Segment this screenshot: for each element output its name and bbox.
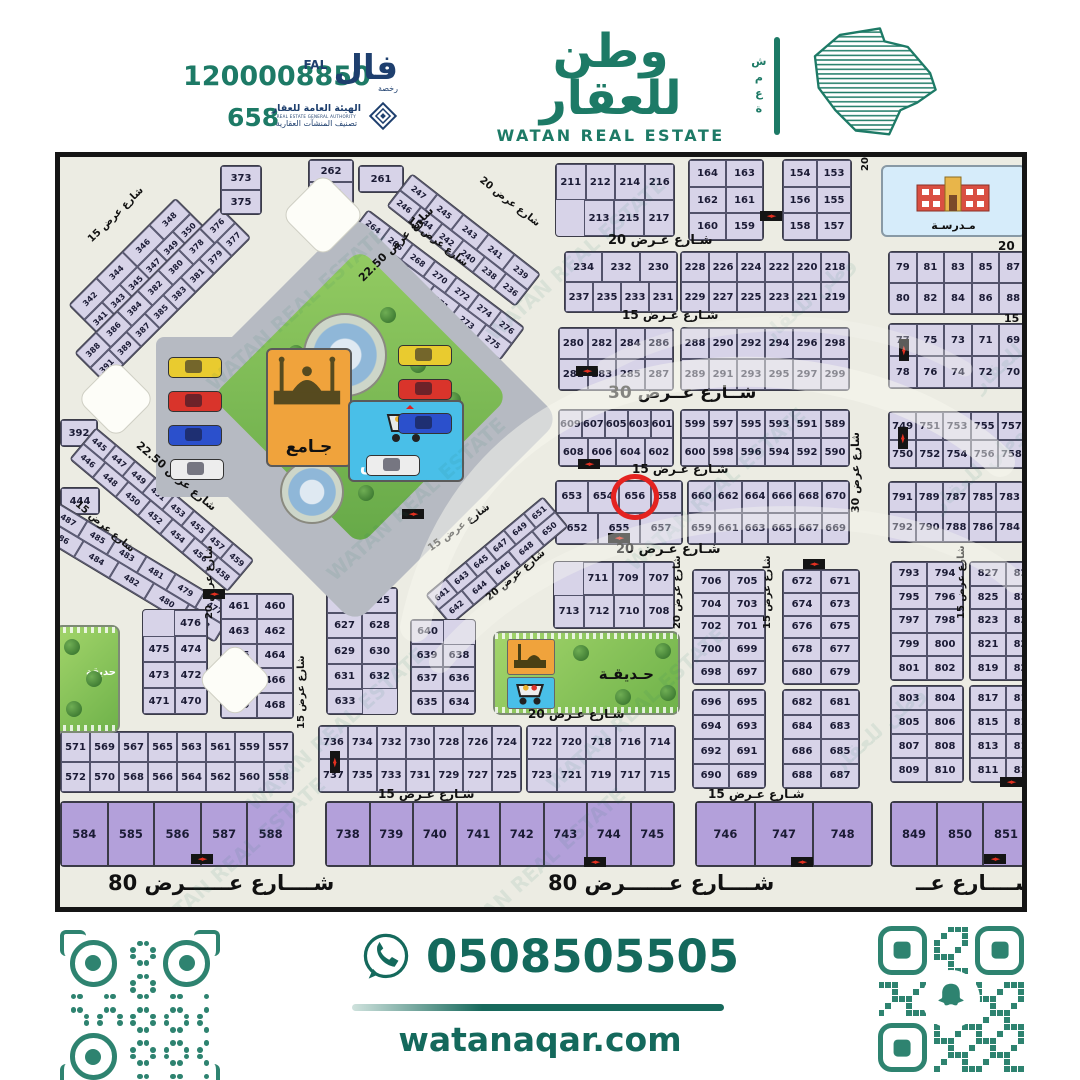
plot-83: 83 bbox=[944, 252, 972, 283]
plot-632: 632 bbox=[362, 664, 397, 689]
plot-816: 816 bbox=[1006, 710, 1027, 734]
plot-84: 84 bbox=[944, 283, 972, 314]
plot-810: 810 bbox=[927, 758, 963, 782]
plot-565: 565 bbox=[148, 732, 177, 762]
traffic-arrow-icon: ◄► bbox=[760, 211, 782, 221]
plot-793: 793 bbox=[891, 562, 927, 586]
plot-670: 670 bbox=[822, 481, 849, 513]
block-634: 640639638637636635634 bbox=[410, 619, 476, 715]
plot-752: 752 bbox=[916, 440, 943, 468]
qr-finder bbox=[878, 1023, 927, 1072]
plot-559: 559 bbox=[235, 732, 264, 762]
plot-220: 220 bbox=[793, 252, 821, 282]
plot-636: 636 bbox=[443, 667, 475, 691]
street-label: شـارع عـرض 20 bbox=[608, 233, 713, 248]
plot-297: 297 bbox=[793, 359, 821, 390]
plot-474: 474 bbox=[175, 636, 207, 662]
block-557: 5715695675655635615595575725705685665645… bbox=[60, 731, 294, 793]
plot-634: 634 bbox=[443, 691, 475, 715]
car-icon bbox=[366, 455, 420, 476]
block-261: 261 bbox=[358, 165, 404, 193]
plot-685: 685 bbox=[821, 739, 859, 764]
traffic-arrow-icon: ◄► bbox=[984, 854, 1006, 864]
plot-674: 674 bbox=[783, 593, 821, 616]
plot-563: 563 bbox=[177, 732, 206, 762]
block-793: 793794795796797798799800801802 bbox=[890, 561, 964, 681]
plot-603: 603 bbox=[628, 410, 651, 438]
rega-classification: تصنيف المنشآت العقارية bbox=[272, 119, 361, 129]
plot-468: 468 bbox=[257, 693, 293, 718]
plot-585: 585 bbox=[108, 802, 155, 866]
plot-280: 280 bbox=[559, 328, 588, 359]
plot-717: 717 bbox=[616, 759, 646, 792]
plot-740: 740 bbox=[413, 802, 457, 866]
plot-empty bbox=[554, 562, 583, 595]
plot-584: 584 bbox=[61, 802, 108, 866]
plot-710: 710 bbox=[614, 595, 644, 628]
plot-721: 721 bbox=[557, 759, 587, 792]
plot-286: 286 bbox=[645, 328, 674, 359]
plot-570: 570 bbox=[90, 762, 119, 792]
plot-758: 758 bbox=[998, 440, 1025, 468]
plot-215: 215 bbox=[614, 200, 644, 236]
plot-795: 795 bbox=[891, 586, 927, 610]
street-label: 15 bbox=[1004, 312, 1019, 325]
plot-791: 791 bbox=[889, 482, 916, 512]
street-label: شـارع عـرض 15 bbox=[708, 787, 804, 801]
plot-824: 824 bbox=[1006, 609, 1027, 633]
plot-464: 464 bbox=[257, 644, 293, 669]
plot-669: 669 bbox=[822, 513, 849, 545]
plot-653: 653 bbox=[556, 481, 588, 513]
block-373: 373375 bbox=[220, 165, 262, 215]
traffic-arrow-icon: ◄► bbox=[578, 459, 600, 469]
plot-605: 605 bbox=[605, 410, 628, 438]
plot-715: 715 bbox=[645, 759, 675, 792]
street-label: شــــارع عــ bbox=[916, 871, 1027, 895]
plot-704: 704 bbox=[693, 593, 729, 616]
plot-463: 463 bbox=[221, 619, 257, 644]
block-738: 738739740741742743744745 bbox=[325, 801, 675, 867]
tree-icon bbox=[573, 645, 589, 661]
plot-empty bbox=[444, 620, 475, 644]
plot-700: 700 bbox=[693, 638, 729, 661]
plot-757: 757 bbox=[998, 412, 1025, 440]
plot-734: 734 bbox=[348, 726, 377, 759]
block-584: 584585586587588 bbox=[60, 801, 295, 867]
plot-155: 155 bbox=[817, 187, 851, 214]
plot-88: 88 bbox=[999, 283, 1027, 314]
plot-672: 672 bbox=[783, 570, 821, 593]
plot-589: 589 bbox=[821, 410, 849, 438]
school-label: مـدرسـة bbox=[883, 219, 1024, 232]
flyer-page: 1200008850 فال FAL رخصة 658 الهيئة العام… bbox=[0, 0, 1080, 1080]
plot-159: 159 bbox=[726, 213, 763, 240]
plot-638: 638 bbox=[443, 644, 475, 668]
qr-finder bbox=[878, 926, 927, 975]
plot-705: 705 bbox=[729, 570, 765, 593]
plot-718: 718 bbox=[586, 726, 616, 759]
footer: 0508505505 watanaqar.com bbox=[0, 908, 1080, 1080]
traffic-arrow-icon: ◄► bbox=[330, 751, 340, 773]
plot-665: 665 bbox=[768, 513, 795, 545]
car-icon bbox=[398, 413, 452, 434]
plot-163: 163 bbox=[726, 160, 763, 187]
plot-680: 680 bbox=[783, 661, 821, 684]
plot-85: 85 bbox=[972, 252, 1000, 283]
plot-164: 164 bbox=[689, 160, 726, 187]
plot-677: 677 bbox=[821, 638, 859, 661]
plot-640: 640 bbox=[411, 620, 444, 644]
street-label: شارع عرض 30 bbox=[849, 432, 862, 513]
plot-557: 557 bbox=[264, 732, 293, 762]
plot-216: 216 bbox=[645, 164, 675, 200]
plot-682: 682 bbox=[783, 690, 821, 715]
plot-290: 290 bbox=[709, 328, 737, 359]
plot-228: 228 bbox=[681, 252, 709, 282]
plot-683: 683 bbox=[821, 715, 859, 740]
footer-divider bbox=[352, 1004, 724, 1011]
plot-70: 70 bbox=[999, 356, 1027, 388]
plot-849: 849 bbox=[891, 802, 937, 866]
plot-594: 594 bbox=[765, 438, 793, 466]
plot-261: 261 bbox=[359, 166, 403, 192]
car-icon bbox=[168, 357, 222, 378]
block-153: 154153156155158157 bbox=[782, 159, 852, 241]
license-area: 1200008850 فال FAL رخصة 658 الهيئة العام… bbox=[183, 55, 398, 145]
plot-825: 825 bbox=[970, 586, 1006, 610]
plot-572: 572 bbox=[61, 762, 90, 792]
plot-75: 75 bbox=[917, 324, 945, 356]
park-block: حـديقـة bbox=[493, 631, 680, 715]
plot-692: 692 bbox=[693, 739, 729, 764]
plot-821: 821 bbox=[970, 633, 1006, 657]
street-label: شــارع عــرض 30 bbox=[608, 383, 756, 403]
plot-628: 628 bbox=[362, 613, 397, 638]
plot-629: 629 bbox=[327, 638, 362, 663]
plot-460: 460 bbox=[257, 594, 293, 619]
plot-741: 741 bbox=[457, 802, 501, 866]
school-icon bbox=[913, 170, 993, 216]
plot-693: 693 bbox=[729, 715, 765, 740]
plot-162: 162 bbox=[689, 187, 726, 214]
plot-76: 76 bbox=[917, 356, 945, 388]
block-827: 827828825826823824821822819820 bbox=[969, 561, 1027, 681]
plot-809: 809 bbox=[891, 758, 927, 782]
plot-284: 284 bbox=[616, 328, 645, 359]
plot-566: 566 bbox=[148, 762, 177, 792]
block-803: 803804805806807808809810 bbox=[890, 685, 964, 783]
qr-bracket bbox=[194, 1064, 220, 1080]
plot-723: 723 bbox=[527, 759, 557, 792]
plot-218: 218 bbox=[821, 252, 849, 282]
plot-599: 599 bbox=[681, 410, 709, 438]
plot-590: 590 bbox=[821, 438, 849, 466]
car-icon bbox=[398, 379, 452, 400]
plot-797: 797 bbox=[891, 609, 927, 633]
plot-154: 154 bbox=[783, 160, 817, 187]
plot-659: 659 bbox=[688, 513, 715, 545]
plot-222: 222 bbox=[765, 252, 793, 282]
plot-725: 725 bbox=[492, 759, 521, 792]
plot-empty bbox=[143, 610, 174, 636]
plot-662: 662 bbox=[715, 481, 742, 513]
plot-294: 294 bbox=[765, 328, 793, 359]
plot-808: 808 bbox=[927, 734, 963, 758]
plot-74: 74 bbox=[944, 356, 972, 388]
plot-161: 161 bbox=[726, 187, 763, 214]
plot-475: 475 bbox=[143, 636, 175, 662]
plot-702: 702 bbox=[693, 616, 729, 639]
traffic-arrow-icon: ◄► bbox=[899, 339, 909, 361]
plot-153: 153 bbox=[817, 160, 851, 187]
plot-663: 663 bbox=[742, 513, 769, 545]
plot-282: 282 bbox=[588, 328, 617, 359]
traffic-arrow-icon: ◄► bbox=[191, 854, 213, 864]
plot-735: 735 bbox=[348, 759, 377, 792]
block-681: 682681684683686685688687 bbox=[782, 689, 860, 789]
traffic-arrow-icon: ◄► bbox=[203, 589, 225, 599]
phone-number[interactable]: 0508505505 bbox=[426, 930, 739, 983]
plot-470: 470 bbox=[175, 688, 207, 714]
plot-819: 819 bbox=[970, 656, 1006, 680]
plot-751: 751 bbox=[916, 412, 943, 440]
plot-789: 789 bbox=[916, 482, 943, 512]
plot-714: 714 bbox=[645, 726, 675, 759]
rega-name-ar: الهيئة العامة للعقار bbox=[272, 103, 361, 115]
block-230: 234232230237235233231 bbox=[564, 251, 678, 313]
qr-bracket bbox=[60, 1064, 86, 1080]
plot-221: 221 bbox=[793, 282, 821, 312]
plot-69: 69 bbox=[999, 324, 1027, 356]
mosque-block: جـامع bbox=[266, 348, 352, 467]
plot-707: 707 bbox=[644, 562, 675, 595]
qr-code-snapchat[interactable] bbox=[878, 926, 1024, 1072]
plot-156: 156 bbox=[783, 187, 817, 214]
plot-719: 719 bbox=[586, 759, 616, 792]
plot-698: 698 bbox=[693, 661, 729, 684]
plot-237: 237 bbox=[565, 282, 593, 312]
block-288: 288290292294296298289291293295297299 bbox=[680, 327, 850, 391]
block-470: 476475474473472471470 bbox=[142, 609, 208, 715]
plot-818: 818 bbox=[1006, 686, 1027, 710]
plot-730: 730 bbox=[406, 726, 435, 759]
plot-461: 461 bbox=[221, 594, 257, 619]
plot-473: 473 bbox=[143, 662, 175, 688]
traffic-arrow-icon: ◄► bbox=[608, 533, 630, 543]
plot-675: 675 bbox=[821, 616, 859, 639]
plot-806: 806 bbox=[927, 710, 963, 734]
car-icon bbox=[398, 345, 452, 366]
plot-802: 802 bbox=[927, 656, 963, 680]
plot-224: 224 bbox=[737, 252, 765, 282]
plot-591: 591 bbox=[793, 410, 821, 438]
plot-635: 635 bbox=[411, 691, 443, 715]
plot-784: 784 bbox=[996, 512, 1023, 542]
plot-592: 592 bbox=[793, 438, 821, 466]
block-589: 599597595593591589600598596594592590 bbox=[680, 409, 850, 467]
plot-234: 234 bbox=[565, 252, 602, 282]
plot-708: 708 bbox=[644, 595, 674, 628]
plot-empty bbox=[363, 689, 397, 714]
block-218: 228226224222220218229227225223221219 bbox=[680, 251, 850, 313]
tree-icon bbox=[655, 643, 671, 659]
plot-783: 783 bbox=[996, 482, 1023, 512]
plot-803: 803 bbox=[891, 686, 927, 710]
plot-595: 595 bbox=[737, 410, 765, 438]
plot-686: 686 bbox=[783, 739, 821, 764]
plot-724: 724 bbox=[492, 726, 521, 759]
brand-name-english: WATAN REAL ESTATE bbox=[478, 128, 743, 144]
plot-850: 850 bbox=[937, 802, 983, 866]
plot-696: 696 bbox=[693, 690, 729, 715]
plot-790: 790 bbox=[916, 512, 943, 542]
brand-logo: وطن للعقار WATAN REAL ESTATE شمعة bbox=[478, 28, 948, 143]
plot-699: 699 bbox=[729, 638, 765, 661]
traffic-arrow-icon: ◄► bbox=[803, 559, 825, 569]
plot-826: 826 bbox=[1006, 586, 1027, 610]
plot-219: 219 bbox=[821, 282, 849, 312]
block-280: 280282284286281283285287 bbox=[558, 327, 674, 391]
tree-icon bbox=[86, 671, 102, 687]
tree-icon bbox=[615, 689, 631, 705]
fal-logo: فال FAL رخصة bbox=[333, 51, 398, 93]
plot-712: 712 bbox=[584, 595, 614, 628]
fountain-bottom bbox=[280, 460, 344, 524]
tree-icon bbox=[380, 307, 396, 323]
plot-754: 754 bbox=[943, 440, 970, 468]
brand-divider-bar bbox=[774, 37, 780, 135]
plot-667: 667 bbox=[795, 513, 822, 545]
plot-755: 755 bbox=[971, 412, 998, 440]
street-label: 20 bbox=[998, 239, 1015, 253]
street-label: شـارع عـرض 15 bbox=[378, 787, 474, 801]
plot-689: 689 bbox=[729, 764, 765, 789]
plot-656-circled: 656 bbox=[619, 481, 651, 513]
plot-217: 217 bbox=[644, 200, 674, 236]
school-block: مـدرسـة bbox=[881, 165, 1026, 237]
plot-596: 596 bbox=[737, 438, 765, 466]
plot-568: 568 bbox=[119, 762, 148, 792]
plot-633: 633 bbox=[327, 689, 363, 714]
park-cart-tile bbox=[507, 677, 555, 709]
street-label: شارع عرض 20 bbox=[204, 545, 215, 619]
car-icon bbox=[168, 391, 222, 412]
block-849: 849850851 bbox=[890, 801, 1027, 867]
street-label: شـارع عـرض 20 bbox=[528, 707, 624, 721]
whatsapp-icon bbox=[360, 931, 412, 983]
plot-688: 688 bbox=[783, 764, 821, 789]
fal-logo-arabic: فال bbox=[333, 51, 398, 85]
plot-230: 230 bbox=[640, 252, 677, 282]
tree-icon bbox=[358, 485, 374, 501]
plot-292: 292 bbox=[737, 328, 765, 359]
traffic-arrow-icon: ◄► bbox=[576, 366, 598, 376]
plot-476: 476 bbox=[174, 610, 207, 636]
plot-745: 745 bbox=[631, 802, 675, 866]
qr-code-left[interactable] bbox=[70, 940, 210, 1080]
plot-676: 676 bbox=[783, 616, 821, 639]
plot-601: 601 bbox=[651, 410, 674, 438]
mosque-icon bbox=[268, 350, 346, 412]
plot-813: 813 bbox=[970, 734, 1006, 758]
plot-711: 711 bbox=[583, 562, 614, 595]
plot-820: 820 bbox=[1006, 656, 1027, 680]
plot-232: 232 bbox=[602, 252, 639, 282]
plot-713: 713 bbox=[554, 595, 584, 628]
plot-753: 753 bbox=[943, 412, 970, 440]
plot-631: 631 bbox=[327, 664, 362, 689]
plot-817: 817 bbox=[970, 686, 1006, 710]
plot-79: 79 bbox=[889, 252, 917, 283]
plot-562: 562 bbox=[206, 762, 235, 792]
plot-664: 664 bbox=[742, 481, 769, 513]
plot-225: 225 bbox=[737, 282, 765, 312]
plot-738: 738 bbox=[326, 802, 370, 866]
plot-569: 569 bbox=[90, 732, 119, 762]
plot-679: 679 bbox=[821, 661, 859, 684]
plot-827: 827 bbox=[970, 562, 1006, 586]
plot-81: 81 bbox=[917, 252, 945, 283]
plot-630: 630 bbox=[362, 638, 397, 663]
traffic-arrow-icon: ◄► bbox=[584, 857, 606, 867]
plot-empty bbox=[556, 200, 584, 236]
plot-666: 666 bbox=[768, 481, 795, 513]
plot-678: 678 bbox=[783, 638, 821, 661]
qr-bracket bbox=[60, 930, 86, 956]
plot-785: 785 bbox=[969, 482, 996, 512]
plot-471: 471 bbox=[143, 688, 175, 714]
qr-finder bbox=[975, 926, 1024, 975]
subdivision-map: جـامعتسوقمـدرسـةحـديقـةحديقة211212214216… bbox=[55, 152, 1027, 912]
tree-icon bbox=[66, 701, 82, 717]
plot-588: 588 bbox=[247, 802, 294, 866]
block-671: 672671674673676675678677680679 bbox=[782, 569, 860, 685]
plot-800: 800 bbox=[927, 633, 963, 657]
mosque-label: جـامع bbox=[268, 437, 350, 457]
plot-746: 746 bbox=[696, 802, 755, 866]
park-label: حـديقـة bbox=[599, 665, 654, 683]
plot-212: 212 bbox=[586, 164, 616, 200]
plot-158: 158 bbox=[783, 213, 817, 240]
plot-373: 373 bbox=[221, 166, 261, 190]
plot-787: 787 bbox=[943, 482, 970, 512]
plot-673: 673 bbox=[821, 593, 859, 616]
plot-73: 73 bbox=[944, 324, 972, 356]
plot-701: 701 bbox=[729, 616, 765, 639]
plot-739: 739 bbox=[370, 802, 414, 866]
plot-235: 235 bbox=[593, 282, 621, 312]
plot-690: 690 bbox=[693, 764, 729, 789]
block-746: 746747748 bbox=[695, 801, 873, 867]
plot-609: 609 bbox=[559, 410, 582, 438]
plot-694: 694 bbox=[693, 715, 729, 740]
traffic-arrow-icon: ◄► bbox=[791, 857, 813, 867]
plot-695: 695 bbox=[729, 690, 765, 715]
plot-214: 214 bbox=[615, 164, 645, 200]
traffic-arrow-icon: ◄► bbox=[1000, 777, 1022, 787]
plot-299: 299 bbox=[821, 359, 849, 390]
park-block-west: حديقة bbox=[55, 625, 120, 733]
plot-157: 157 bbox=[817, 213, 851, 240]
tree-icon bbox=[64, 639, 80, 655]
block-601: 609607605603601608606604602 bbox=[558, 409, 674, 467]
plot-691: 691 bbox=[729, 739, 765, 764]
plot-71: 71 bbox=[972, 324, 1000, 356]
plot-561: 561 bbox=[206, 732, 235, 762]
plot-728: 728 bbox=[434, 726, 463, 759]
plot-799: 799 bbox=[891, 633, 927, 657]
